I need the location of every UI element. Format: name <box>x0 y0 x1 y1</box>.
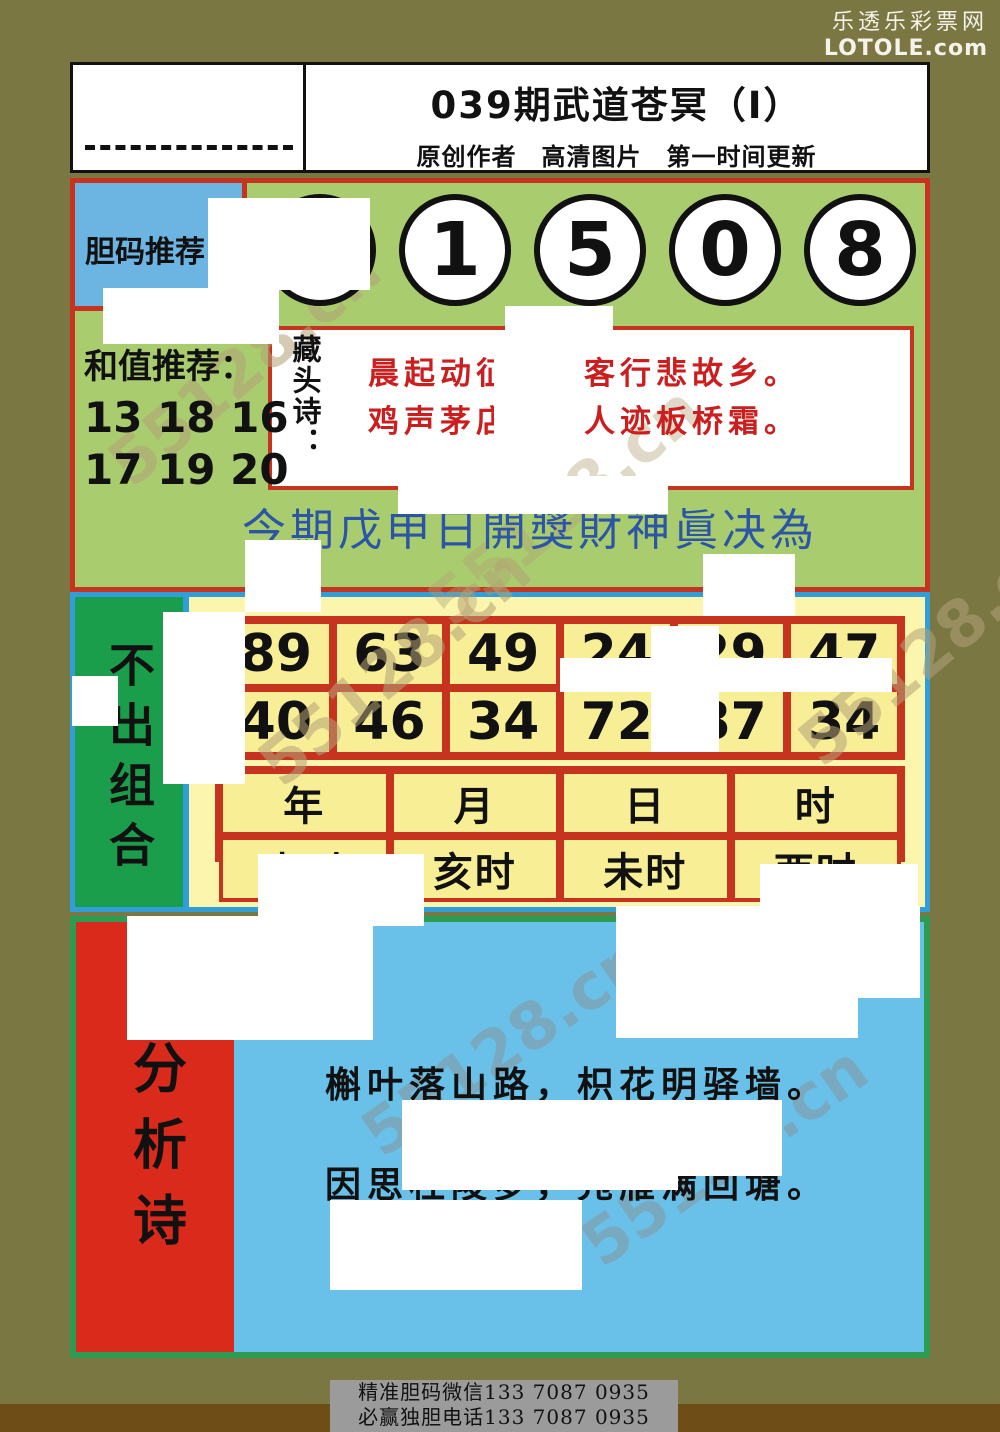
footer-contact: 精准胆码微信133 7087 0935 必赢独胆电话133 7087 0935 <box>330 1380 678 1432</box>
page-subtitle: 原创作者 高清图片 第一时间更新 <box>306 137 927 172</box>
footer-phone: 必赢独胆电话133 7087 0935 <box>330 1405 678 1430</box>
censor-block <box>494 350 576 442</box>
hezhi-values-2: 17 19 20 <box>84 444 289 496</box>
table-cell: 46 <box>333 688 447 756</box>
danma-number-circle: 1 <box>399 194 511 306</box>
censor-block <box>856 906 920 998</box>
period-value: 未时 <box>560 836 731 902</box>
censor-block <box>163 612 245 784</box>
period-header: 时 <box>731 770 902 836</box>
hezhi-label: 和值推荐： <box>84 342 289 392</box>
period-table: 年 月 日 时 申时 亥时 未时 酉时 <box>215 766 905 862</box>
table-cell: 49 <box>446 620 560 688</box>
censor-block <box>676 1100 782 1176</box>
censor-block <box>398 476 668 514</box>
censor-block <box>505 306 613 346</box>
header-logo-box <box>73 65 306 170</box>
censor-block <box>616 906 858 1038</box>
censor-block <box>208 198 370 290</box>
site-name: 乐透乐彩票网 <box>824 4 988 36</box>
header-title-box: 039期武道苍冥（I） 原创作者 高清图片 第一时间更新 <box>306 65 927 170</box>
site-domain: LOTOLE.com <box>824 36 988 61</box>
danma-label: 胆码推荐 <box>85 227 205 271</box>
danma-number-circle: 5 <box>534 194 646 306</box>
censor-block <box>72 676 118 726</box>
danma-number-circle: 0 <box>669 194 781 306</box>
censor-block <box>103 288 279 344</box>
hezhi-values-1: 13 18 16 <box>84 392 289 444</box>
table-cell: 34 <box>446 688 560 756</box>
header: 039期武道苍冥（I） 原创作者 高清图片 第一时间更新 <box>70 62 930 173</box>
table-cell: 63 <box>333 620 447 688</box>
page-title: 039期武道苍冥（I） <box>306 75 927 129</box>
site-logo: 乐透乐彩票网 LOTOLE.com <box>824 4 988 61</box>
censor-block <box>330 1200 582 1290</box>
cangtou-poem: 晨起动征铎，客行悲故乡。 鸡声茅店月，人迹板桥霜。 <box>368 350 800 446</box>
censor-block <box>402 1100 678 1190</box>
table-cell: 34 <box>787 688 901 756</box>
censor-block <box>703 554 795 616</box>
censor-block <box>245 540 321 612</box>
cangtou-poem-line-1: 晨起动征铎，客行悲故乡。 <box>368 350 800 398</box>
period-header: 月 <box>390 770 561 836</box>
footer-wechat: 精准胆码微信133 7087 0935 <box>330 1380 678 1405</box>
danma-number-circle: 8 <box>804 194 916 306</box>
dashed-line <box>85 145 293 150</box>
censor-block <box>127 916 373 1040</box>
cangtou-label: 藏头诗： <box>284 334 326 484</box>
censor-block <box>560 658 892 692</box>
fenxi-label: 分析诗 <box>116 1040 195 1352</box>
cangtou-poem-line-2: 鸡声茅店月，人迹板桥霜。 <box>368 398 800 446</box>
period-header: 日 <box>560 770 731 836</box>
censor-block <box>760 864 918 910</box>
hezhi-block: 和值推荐： 13 18 16 17 19 20 <box>84 342 289 496</box>
